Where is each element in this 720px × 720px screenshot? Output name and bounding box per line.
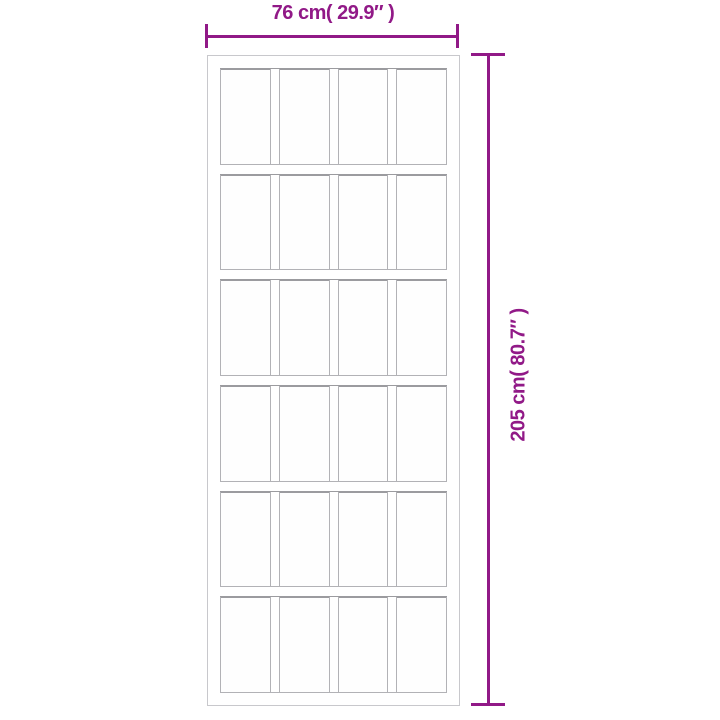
door-panel — [338, 492, 389, 587]
door-panel — [279, 69, 330, 164]
height-dimension-top-tick — [471, 53, 505, 56]
door-panel — [396, 280, 447, 375]
door-panel — [279, 386, 330, 481]
width-dimension-right-tick — [456, 24, 459, 48]
door-panel-grid — [220, 68, 447, 693]
door-panel-row — [220, 174, 447, 271]
door-panel — [396, 69, 447, 164]
door-panel — [220, 597, 271, 692]
door-panel — [220, 492, 271, 587]
width-dimension-line — [206, 35, 459, 38]
door-panel — [279, 175, 330, 270]
door-panel-row — [220, 279, 447, 376]
door-panel — [338, 386, 389, 481]
door-panel-row — [220, 596, 447, 693]
door-outline — [207, 55, 460, 706]
door-panel — [338, 175, 389, 270]
height-dimension-line — [487, 54, 490, 706]
door-panel-row — [220, 491, 447, 588]
door-panel — [396, 597, 447, 692]
door-panel — [220, 386, 271, 481]
door-panel — [279, 492, 330, 587]
door-panel — [220, 280, 271, 375]
door-panel — [338, 597, 389, 692]
width-dimension-left-tick — [205, 24, 208, 48]
door-panel — [396, 175, 447, 270]
height-dimension-label: 205 cm( 80.7″ ) — [508, 308, 531, 441]
door-panel — [396, 386, 447, 481]
door-panel — [396, 492, 447, 587]
door-panel — [279, 280, 330, 375]
door-panel — [220, 69, 271, 164]
height-dimension-bottom-tick — [471, 703, 505, 706]
door-panel — [338, 69, 389, 164]
door-panel — [220, 175, 271, 270]
door-panel-row — [220, 68, 447, 165]
door-panel — [338, 280, 389, 375]
door-panel-row — [220, 385, 447, 482]
width-dimension-label: 76 cm( 29.9″ ) — [272, 2, 395, 25]
door-panel — [279, 597, 330, 692]
